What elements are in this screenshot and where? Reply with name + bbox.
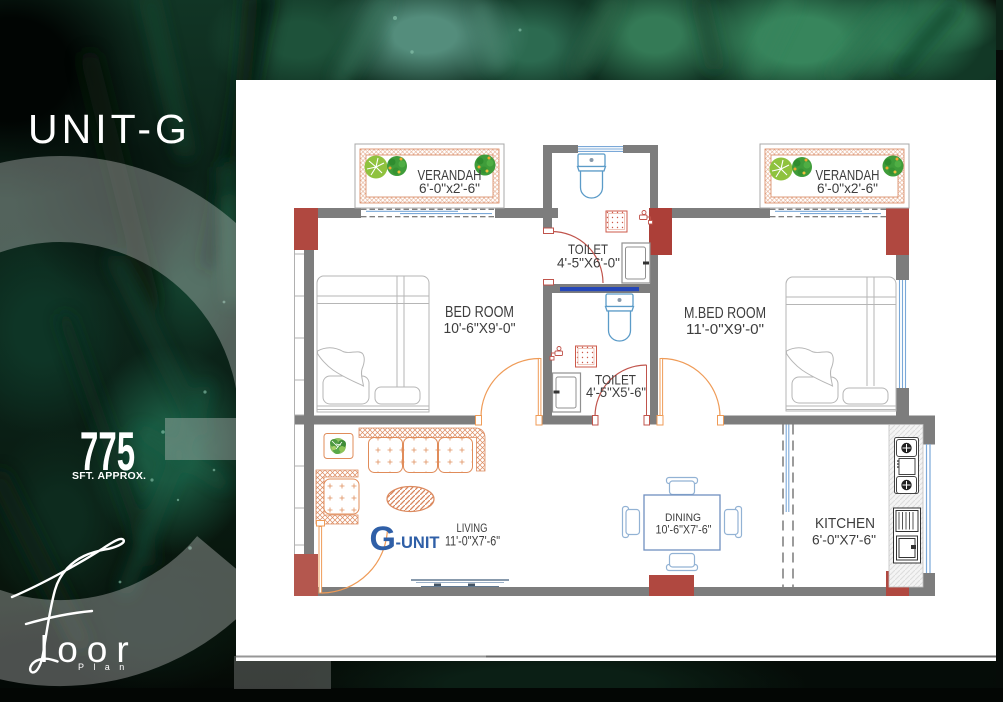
svg-text:10'-6"X7'-6": 10'-6"X7'-6" — [656, 525, 712, 537]
svg-text:10'-6"X9'-0": 10'-6"X9'-0" — [444, 321, 516, 337]
svg-text:11'-0"X9'-0": 11'-0"X9'-0" — [686, 322, 764, 338]
svg-text:DINING: DINING — [665, 512, 701, 524]
svg-text:6'-0"x2'-6": 6'-0"x2'-6" — [817, 180, 878, 196]
svg-text:6'-0"X7'-6": 6'-0"X7'-6" — [812, 532, 876, 548]
svg-text:6'-0"x2'-6": 6'-0"x2'-6" — [419, 180, 480, 196]
svg-text:BED ROOM: BED ROOM — [445, 304, 514, 321]
svg-text:11'-0"X7'-6": 11'-0"X7'-6" — [445, 534, 500, 549]
svg-text:KITCHEN: KITCHEN — [815, 515, 875, 532]
svg-text:M.BED ROOM: M.BED ROOM — [684, 305, 766, 322]
svg-text:-UNIT: -UNIT — [396, 534, 440, 552]
svg-text:G: G — [370, 520, 396, 558]
svg-text:4'-5"X5'-6": 4'-5"X5'-6" — [586, 385, 646, 400]
svg-text:4'-5"X6'-0": 4'-5"X6'-0" — [557, 256, 620, 271]
